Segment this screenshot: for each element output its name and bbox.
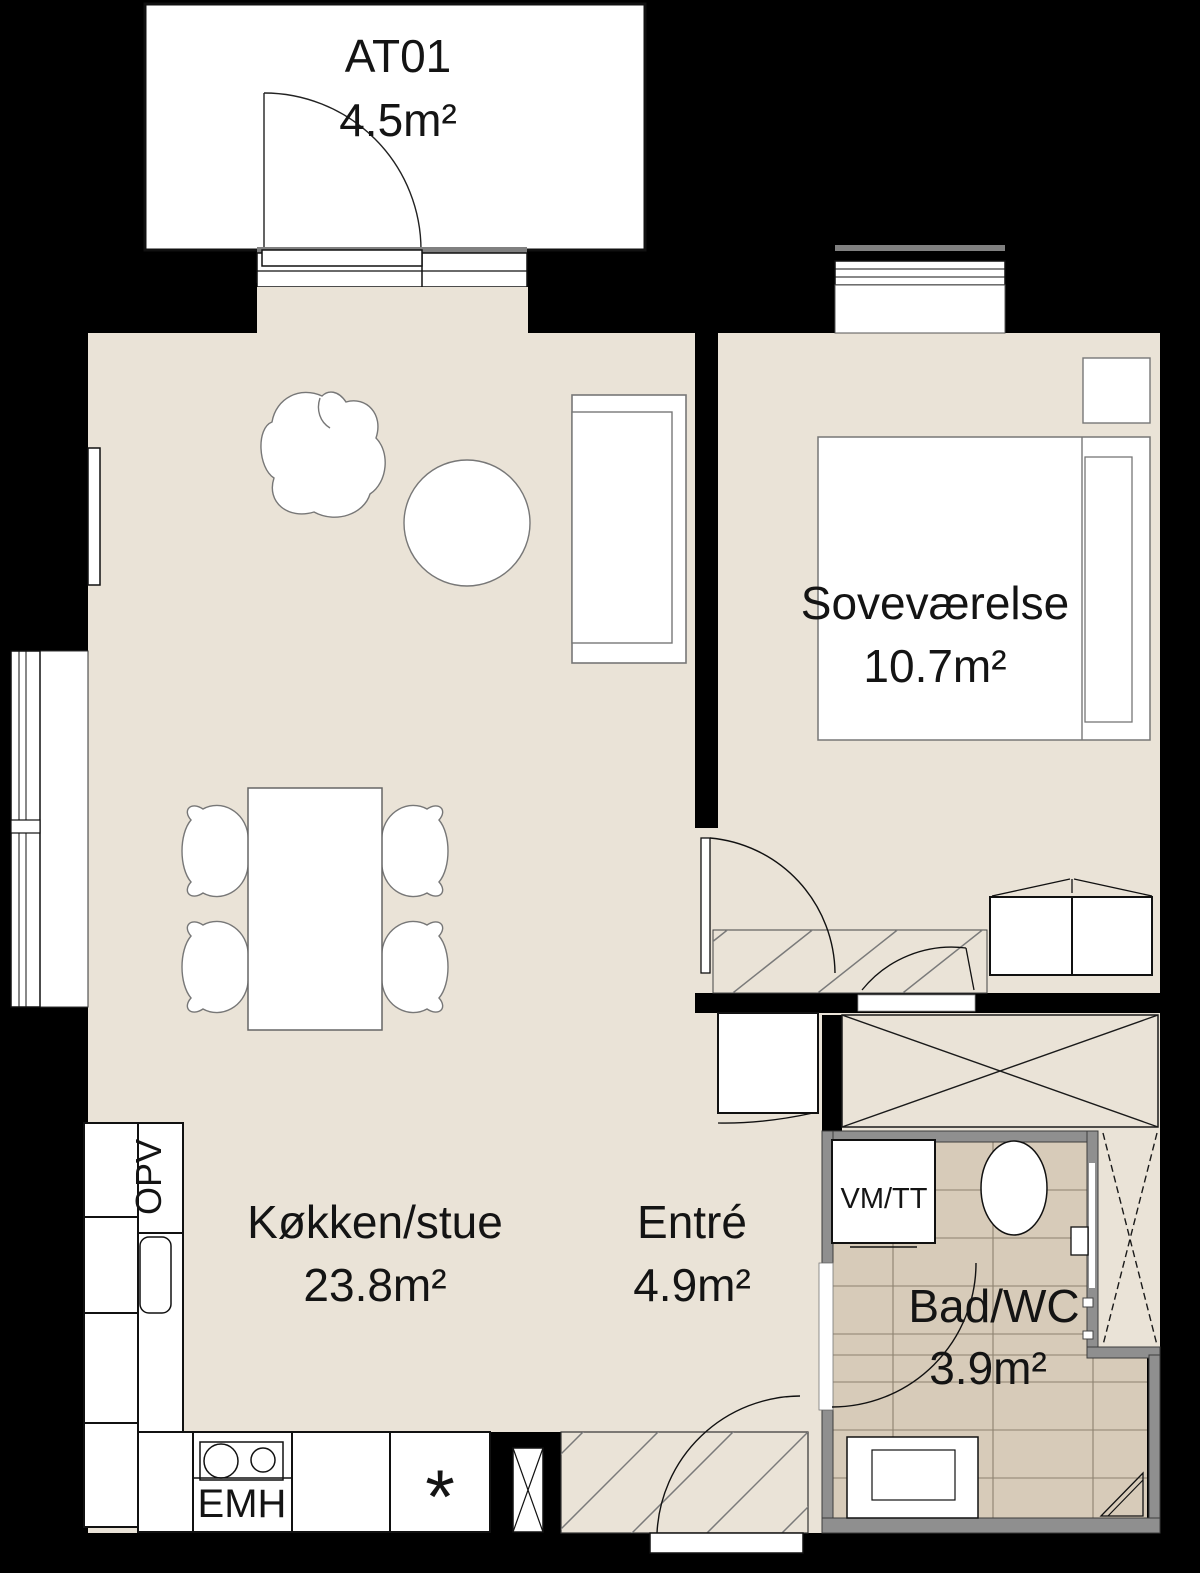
wardrobe-right-door [1072, 897, 1152, 975]
dining-chair [381, 921, 448, 1012]
side-table [404, 460, 530, 586]
washer-dryer-label: VM/TT [841, 1183, 928, 1215]
extractor-hood-label: EMH [198, 1482, 287, 1526]
dining-chair [381, 805, 448, 896]
bed-pillow [1085, 457, 1132, 722]
kitchen-cabinet [292, 1432, 390, 1532]
west-window [11, 651, 88, 1007]
bathroom-door-opening [819, 1263, 833, 1410]
radiator [88, 448, 100, 585]
kitchen-cabinet [84, 1313, 138, 1423]
wardrobe-left-door [990, 897, 1072, 975]
room-label-entry-name: Entré [637, 1196, 747, 1248]
bathroom-sink [847, 1437, 978, 1518]
wall-top-middle [528, 283, 823, 333]
wall-fixture [1083, 1298, 1093, 1307]
nightstand [1083, 358, 1150, 423]
window-niche [33, 651, 88, 1007]
room-label-bedroom-area: 10.7m² [863, 640, 1006, 692]
bathroom-wall-bottom [822, 1518, 1160, 1533]
dining-chair [182, 805, 249, 896]
room-label-kitchen-living-area: 23.8m² [303, 1259, 446, 1311]
dishwasher-label: OPV [128, 1139, 169, 1215]
entry-cabinet [718, 1013, 818, 1113]
floor-plan-canvas: AT01 4.5m² Soveværelse 10.7m² Køkken/stu… [0, 0, 1200, 1573]
door-opening [858, 995, 975, 1011]
dining-table [248, 788, 382, 1030]
floor-plan-page: AT01 4.5m² Soveværelse 10.7m² Køkken/stu… [0, 0, 1200, 1573]
wall-top-left [88, 283, 257, 333]
door-leaf [701, 838, 710, 973]
room-label-kitchen-living-name: Køkken/stue [247, 1196, 503, 1248]
sofa-seat [572, 412, 672, 643]
toilet-cistern [1071, 1227, 1088, 1255]
dining-chair [182, 921, 249, 1012]
room-label-balcony-area: 4.5m² [339, 94, 457, 146]
bathroom-wall-right-lower [1149, 1355, 1160, 1530]
window-divider [11, 820, 40, 833]
kitchen-cabinet [138, 1432, 193, 1532]
burner-icon [204, 1444, 238, 1478]
room-floor-shaft-strip [1098, 1131, 1160, 1347]
wall-living-bedroom [695, 333, 718, 828]
window-sill-strip [835, 245, 1005, 251]
entrance-shaft [513, 1448, 543, 1532]
bathroom-wall-left-lower [822, 1410, 833, 1530]
room-label-bathroom-name: Bad/WC [908, 1280, 1079, 1332]
window-niche [835, 285, 1005, 333]
room-label-bathroom-area: 3.9m² [929, 1342, 1047, 1394]
room-floor-closet-strip [823, 1013, 1160, 1131]
cabinet-asterisk-label: * [425, 1455, 455, 1540]
wall-glass-strip [1089, 1163, 1095, 1288]
burner-icon [251, 1448, 275, 1472]
balcony-door-panel [262, 250, 422, 266]
room-label-balcony-name: AT01 [345, 30, 452, 82]
kitchen-corner-cabinet [84, 1423, 138, 1527]
room-label-entry-area: 4.9m² [633, 1259, 751, 1311]
toilet [981, 1141, 1047, 1235]
plant [261, 392, 385, 517]
kitchen-cabinet [84, 1217, 138, 1313]
room-label-bedroom-name: Soveværelse [801, 577, 1069, 629]
kitchen-sink [140, 1237, 171, 1313]
front-door-leaf [650, 1533, 803, 1553]
wall-stub-closet [822, 1015, 842, 1131]
window-frame [835, 261, 1005, 285]
wall-fixture [1083, 1331, 1093, 1339]
